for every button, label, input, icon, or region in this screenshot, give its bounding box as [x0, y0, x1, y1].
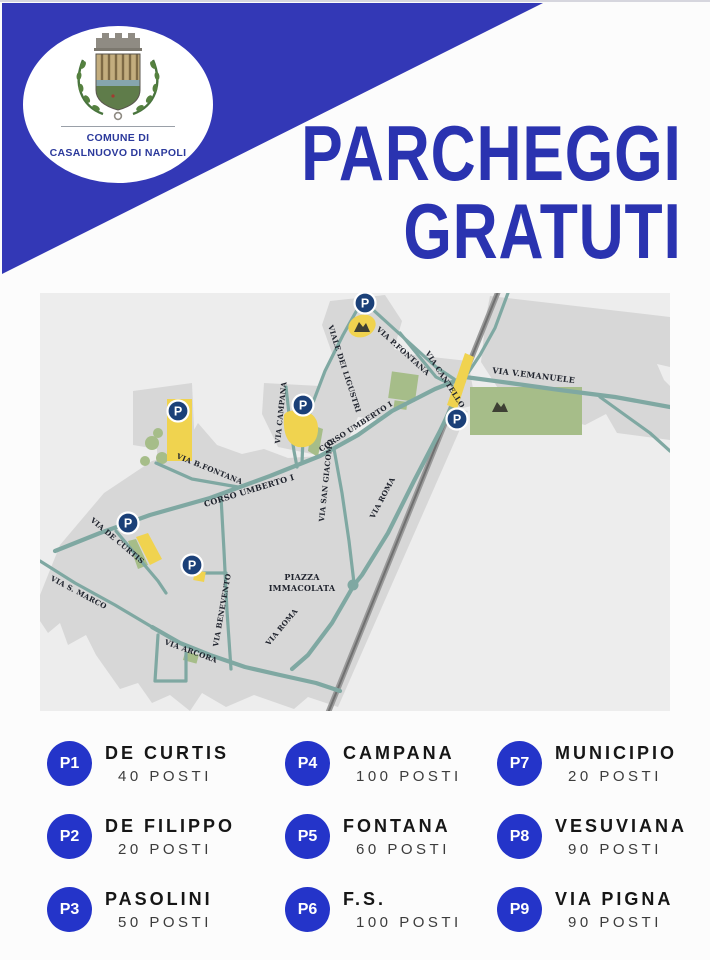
- parking-map: VIA P.FONTANAVIALE DEI LIGUSTRIVIA CANTE…: [40, 293, 670, 711]
- legend-name: VESUVIANA: [555, 816, 687, 837]
- municipal-crest-icon: [23, 32, 213, 124]
- legend-item: P3PASOLINI50 POSTI: [47, 873, 285, 946]
- svg-text:P: P: [188, 559, 196, 573]
- crest-text-line1: COMUNE DI: [23, 132, 213, 144]
- legend-name: VIA PIGNA: [555, 889, 673, 910]
- parking-badge: P3: [47, 887, 92, 932]
- street-label: IMMACOLATA: [269, 583, 336, 593]
- legend-capacity: 90 POSTI: [568, 841, 687, 858]
- legend-name: F.S.: [343, 889, 462, 910]
- legend-capacity: 90 POSTI: [568, 914, 673, 931]
- legend-capacity: 60 POSTI: [356, 841, 451, 858]
- parking-badge: P6: [285, 887, 330, 932]
- svg-text:P: P: [174, 405, 182, 419]
- legend-name: DE FILIPPO: [105, 816, 235, 837]
- legend-item: P1DE CURTIS40 POSTI: [47, 727, 285, 800]
- parking-marker-icon: P: [182, 555, 203, 576]
- crest-text-line2: CASALNUOVO DI NAPOLI: [23, 147, 213, 159]
- svg-text:P: P: [453, 413, 461, 427]
- legend-name: CAMPANA: [343, 743, 462, 764]
- legend-item: P2DE FILIPPO20 POSTI: [47, 800, 285, 873]
- municipal-seal: COMUNE DI CASALNUOVO DI NAPOLI: [23, 26, 213, 183]
- title-line1: PARCHEGGI: [302, 114, 682, 192]
- legend-capacity: 50 POSTI: [118, 914, 213, 931]
- legend-name: PASOLINI: [105, 889, 213, 910]
- legend-name: MUNICIPIO: [555, 743, 677, 764]
- legend-name: DE CURTIS: [105, 743, 229, 764]
- street-label: PIAZZA: [284, 572, 320, 582]
- svg-text:P: P: [124, 517, 132, 531]
- parking-marker-icon: P: [168, 401, 189, 422]
- legend-item: P7MUNICIPIO20 POSTI: [497, 727, 677, 800]
- parking-badge: P2: [47, 814, 92, 859]
- legend-item: P9VIA PIGNA90 POSTI: [497, 873, 677, 946]
- parking-badge: P9: [497, 887, 542, 932]
- parking-marker-icon: P: [355, 293, 376, 314]
- parking-marker-icon: P: [293, 395, 314, 416]
- legend-item: P8VESUVIANA90 POSTI: [497, 800, 677, 873]
- poster-page: COMUNE DI CASALNUOVO DI NAPOLI PARCHEGGI…: [0, 0, 710, 960]
- legend-item: P4CAMPANA100 POSTI: [285, 727, 497, 800]
- svg-text:P: P: [361, 297, 369, 311]
- legend-item: P6F.S.100 POSTI: [285, 873, 497, 946]
- parking-legend: P1DE CURTIS40 POSTIP2DE FILIPPO20 POSTIP…: [40, 727, 680, 952]
- legend-item: P5FONTANA60 POSTI: [285, 800, 497, 873]
- title-line2: GRATUTI: [302, 192, 682, 270]
- top-hairline: [0, 0, 710, 2]
- parking-badge: P7: [497, 741, 542, 786]
- parking-badge: P4: [285, 741, 330, 786]
- parking-marker-icon: P: [118, 513, 139, 534]
- svg-text:P: P: [299, 399, 307, 413]
- legend-capacity: 100 POSTI: [356, 914, 462, 931]
- parking-marker-icon: P: [447, 409, 468, 430]
- legend-name: FONTANA: [343, 816, 451, 837]
- parking-badge: P5: [285, 814, 330, 859]
- legend-capacity: 40 POSTI: [118, 768, 229, 785]
- parking-badge: P8: [497, 814, 542, 859]
- crest-divider: [61, 126, 175, 127]
- poster-title: PARCHEGGI GRATUTI: [206, 114, 682, 270]
- legend-capacity: 20 POSTI: [118, 841, 235, 858]
- legend-capacity: 100 POSTI: [356, 768, 462, 785]
- parking-badge: P1: [47, 741, 92, 786]
- legend-capacity: 20 POSTI: [568, 768, 677, 785]
